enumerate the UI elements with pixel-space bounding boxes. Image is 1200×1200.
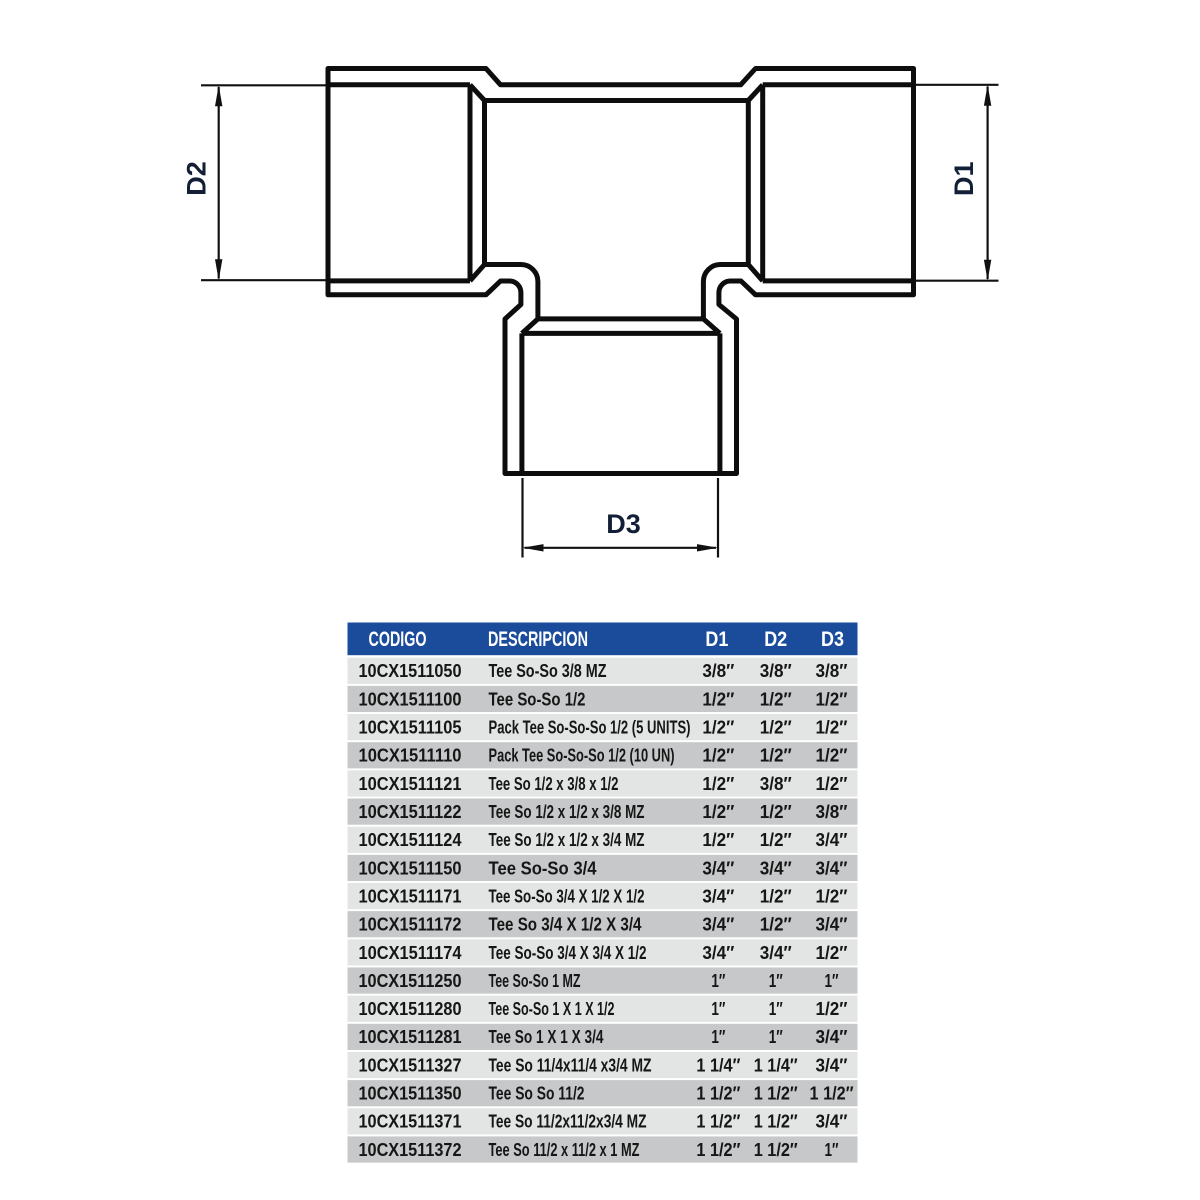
svg-text:3/4″: 3/4″ xyxy=(816,1027,848,1047)
svg-text:1 1/2″: 1 1/2″ xyxy=(696,1112,740,1132)
svg-text:1″: 1″ xyxy=(769,1027,783,1047)
svg-text:Tee So 1 X 1 X 3/4: Tee So 1 X 1 X 3/4 xyxy=(489,1027,604,1047)
svg-text:Tee So-So 3/4 X 1/2 X 1/2: Tee So-So 3/4 X 1/2 X 1/2 xyxy=(489,886,645,906)
svg-text:DESCRIPCION: DESCRIPCION xyxy=(488,628,588,651)
svg-text:1/2″: 1/2″ xyxy=(760,886,792,906)
svg-text:1 1/2″: 1 1/2″ xyxy=(754,1084,798,1104)
svg-text:1/2″: 1/2″ xyxy=(760,915,792,935)
svg-text:Pack Tee So-So-So 1/2 (5 UNITS: Pack Tee So-So-So 1/2 (5 UNITS) xyxy=(489,717,691,737)
svg-text:1/2″: 1/2″ xyxy=(702,746,734,766)
svg-text:3/4″: 3/4″ xyxy=(816,915,848,935)
svg-text:Tee So 11/4x11/4 x3/4 MZ: Tee So 11/4x11/4 x3/4 MZ xyxy=(489,1055,652,1075)
svg-text:3/4″: 3/4″ xyxy=(702,915,734,935)
svg-text:D1: D1 xyxy=(949,161,979,196)
svg-text:Tee So So 11/2: Tee So So 11/2 xyxy=(489,1084,585,1104)
svg-text:1″: 1″ xyxy=(825,971,839,991)
svg-text:1/2″: 1/2″ xyxy=(816,999,848,1019)
svg-text:10CX1511172: 10CX1511172 xyxy=(359,915,462,935)
svg-text:1/2″: 1/2″ xyxy=(702,830,734,850)
svg-text:1″: 1″ xyxy=(711,1027,725,1047)
svg-text:10CX1511150: 10CX1511150 xyxy=(359,858,462,878)
svg-text:D3: D3 xyxy=(821,628,844,651)
svg-text:Tee So 1/2 x 1/2 x 3/8 MZ: Tee So 1/2 x 1/2 x 3/8 MZ xyxy=(489,802,645,822)
svg-text:1″: 1″ xyxy=(711,971,725,991)
svg-text:1/2″: 1/2″ xyxy=(816,717,848,737)
svg-text:1 1/2″: 1 1/2″ xyxy=(810,1084,854,1104)
svg-text:3/4″: 3/4″ xyxy=(760,943,792,963)
svg-text:1/2″: 1/2″ xyxy=(816,943,848,963)
svg-text:3/4″: 3/4″ xyxy=(816,1112,848,1132)
svg-text:1/2″: 1/2″ xyxy=(816,774,848,794)
svg-text:D2: D2 xyxy=(764,628,787,651)
svg-text:1/2″: 1/2″ xyxy=(702,774,734,794)
svg-text:1 1/2″: 1 1/2″ xyxy=(696,1084,740,1104)
svg-text:10CX1511110: 10CX1511110 xyxy=(359,746,462,766)
svg-text:3/8″: 3/8″ xyxy=(816,802,848,822)
svg-text:1/2″: 1/2″ xyxy=(760,689,792,709)
svg-text:1″: 1″ xyxy=(825,1140,839,1160)
svg-text:1/2″: 1/2″ xyxy=(760,746,792,766)
svg-text:Tee So-So 1 X 1 X 1/2: Tee So-So 1 X 1 X 1/2 xyxy=(489,999,615,1019)
svg-text:1 1/2″: 1 1/2″ xyxy=(754,1140,798,1160)
svg-text:Tee So 3/4 X 1/2 X 3/4: Tee So 3/4 X 1/2 X 3/4 xyxy=(489,915,642,935)
svg-text:Tee So-So 1 MZ: Tee So-So 1 MZ xyxy=(489,971,581,991)
svg-text:CODIGO: CODIGO xyxy=(369,628,427,651)
svg-text:D1: D1 xyxy=(705,628,728,651)
svg-text:Tee So-So 3/4 X 3/4 X 1/2: Tee So-So 3/4 X 3/4 X 1/2 xyxy=(489,943,647,963)
svg-text:1″: 1″ xyxy=(769,971,783,991)
svg-text:10CX1511121: 10CX1511121 xyxy=(359,774,462,794)
svg-text:Tee So 1/2 x 3/8 x 1/2: Tee So 1/2 x 3/8 x 1/2 xyxy=(489,774,619,794)
svg-text:Tee So 11/2 x 11/2 x 1 MZ: Tee So 11/2 x 11/2 x 1 MZ xyxy=(489,1140,640,1160)
svg-text:10CX1511371: 10CX1511371 xyxy=(359,1112,462,1132)
svg-text:10CX1511171: 10CX1511171 xyxy=(359,886,462,906)
svg-text:3/8″: 3/8″ xyxy=(760,774,792,794)
svg-text:10CX1511124: 10CX1511124 xyxy=(359,830,462,850)
svg-text:Tee So-So 3/4: Tee So-So 3/4 xyxy=(489,858,597,878)
svg-text:10CX1511280: 10CX1511280 xyxy=(359,999,462,1019)
svg-text:Pack Tee So-So-So 1/2 (10 UN): Pack Tee So-So-So 1/2 (10 UN) xyxy=(489,746,675,766)
svg-text:1/2″: 1/2″ xyxy=(702,802,734,822)
svg-text:D3: D3 xyxy=(606,509,641,539)
svg-text:Tee So 1/2 x 1/2 x 3/4 MZ: Tee So 1/2 x 1/2 x 3/4 MZ xyxy=(489,830,645,850)
svg-text:3/4″: 3/4″ xyxy=(816,858,848,878)
svg-text:3/4″: 3/4″ xyxy=(702,886,734,906)
svg-text:D2: D2 xyxy=(182,161,212,196)
svg-text:1/2″: 1/2″ xyxy=(816,746,848,766)
svg-text:10CX1511281: 10CX1511281 xyxy=(359,1027,462,1047)
svg-text:3/4″: 3/4″ xyxy=(702,858,734,878)
svg-text:Tee So-So 3/8 MZ: Tee So-So 3/8 MZ xyxy=(489,661,607,681)
svg-text:1 1/4″: 1 1/4″ xyxy=(696,1055,740,1075)
svg-text:1/2″: 1/2″ xyxy=(760,717,792,737)
svg-text:10CX1511327: 10CX1511327 xyxy=(359,1055,462,1075)
svg-text:10CX1511050: 10CX1511050 xyxy=(359,661,462,681)
svg-text:3/8″: 3/8″ xyxy=(816,661,848,681)
svg-text:1/2″: 1/2″ xyxy=(816,689,848,709)
svg-text:1/2″: 1/2″ xyxy=(702,689,734,709)
svg-text:1 1/4″: 1 1/4″ xyxy=(754,1055,798,1075)
svg-text:1″: 1″ xyxy=(769,999,783,1019)
svg-text:3/4″: 3/4″ xyxy=(816,830,848,850)
svg-text:3/4″: 3/4″ xyxy=(760,858,792,878)
svg-text:1/2″: 1/2″ xyxy=(702,717,734,737)
svg-text:3/8″: 3/8″ xyxy=(702,661,734,681)
svg-text:3/4″: 3/4″ xyxy=(702,943,734,963)
svg-text:10CX1511105: 10CX1511105 xyxy=(359,717,462,737)
svg-text:1 1/2″: 1 1/2″ xyxy=(754,1112,798,1132)
svg-text:10CX1511122: 10CX1511122 xyxy=(359,802,462,822)
svg-text:10CX1511250: 10CX1511250 xyxy=(359,971,462,991)
svg-text:1/2″: 1/2″ xyxy=(816,886,848,906)
svg-text:Tee So 11/2x11/2x3/4 MZ: Tee So 11/2x11/2x3/4 MZ xyxy=(489,1112,647,1132)
svg-text:1 1/2″: 1 1/2″ xyxy=(696,1140,740,1160)
svg-text:10CX1511174: 10CX1511174 xyxy=(359,943,462,963)
svg-text:Tee So-So 1/2: Tee So-So 1/2 xyxy=(489,689,586,709)
svg-text:1/2″: 1/2″ xyxy=(760,830,792,850)
svg-text:3/4″: 3/4″ xyxy=(816,1055,848,1075)
svg-text:10CX1511100: 10CX1511100 xyxy=(359,689,462,709)
svg-text:1/2″: 1/2″ xyxy=(760,802,792,822)
svg-text:10CX1511350: 10CX1511350 xyxy=(359,1084,462,1104)
svg-text:10CX1511372: 10CX1511372 xyxy=(359,1140,462,1160)
svg-text:3/8″: 3/8″ xyxy=(760,661,792,681)
svg-text:1″: 1″ xyxy=(711,999,725,1019)
